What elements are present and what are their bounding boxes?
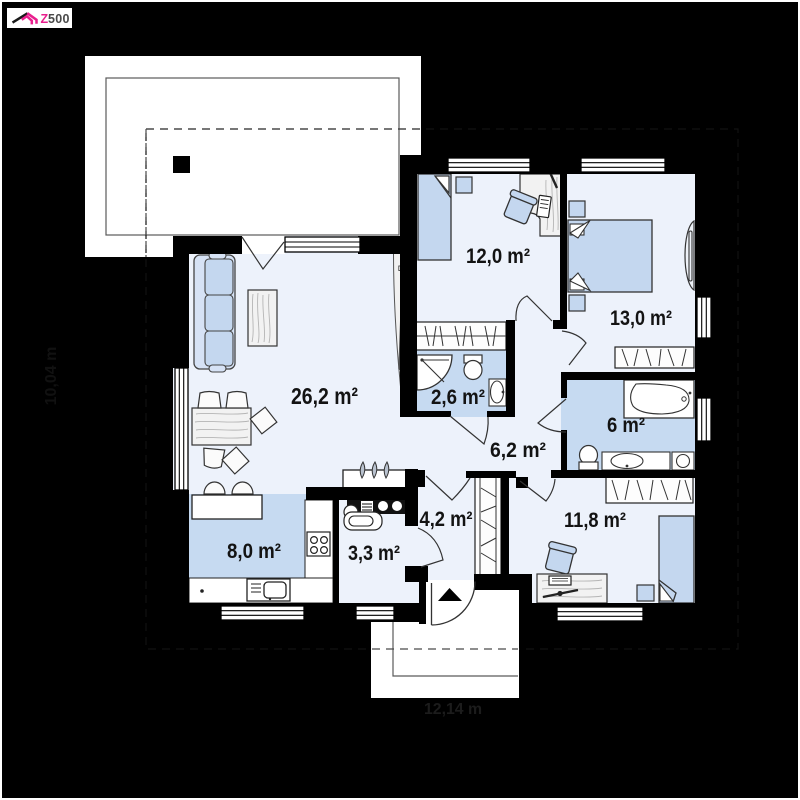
svg-text:6,2 m²: 6,2 m² (490, 439, 546, 462)
svg-text:6 m²: 6 m² (607, 414, 645, 437)
svg-text:2,6 m²: 2,6 m² (431, 386, 485, 409)
svg-text:11,8 m²: 11,8 m² (564, 509, 626, 532)
svg-text:500: 500 (48, 12, 70, 26)
svg-text:8,0 m²: 8,0 m² (227, 540, 281, 563)
svg-text:10,04 m: 10,04 m (43, 347, 60, 406)
svg-text:13,0 m²: 13,0 m² (610, 307, 672, 330)
svg-text:26,2 m²: 26,2 m² (291, 383, 358, 409)
svg-text:3,3 m²: 3,3 m² (348, 542, 400, 565)
svg-text:12,0 m²: 12,0 m² (466, 245, 530, 268)
svg-text:4,2 m²: 4,2 m² (420, 508, 473, 531)
svg-text:12,14 m: 12,14 m (424, 701, 482, 718)
